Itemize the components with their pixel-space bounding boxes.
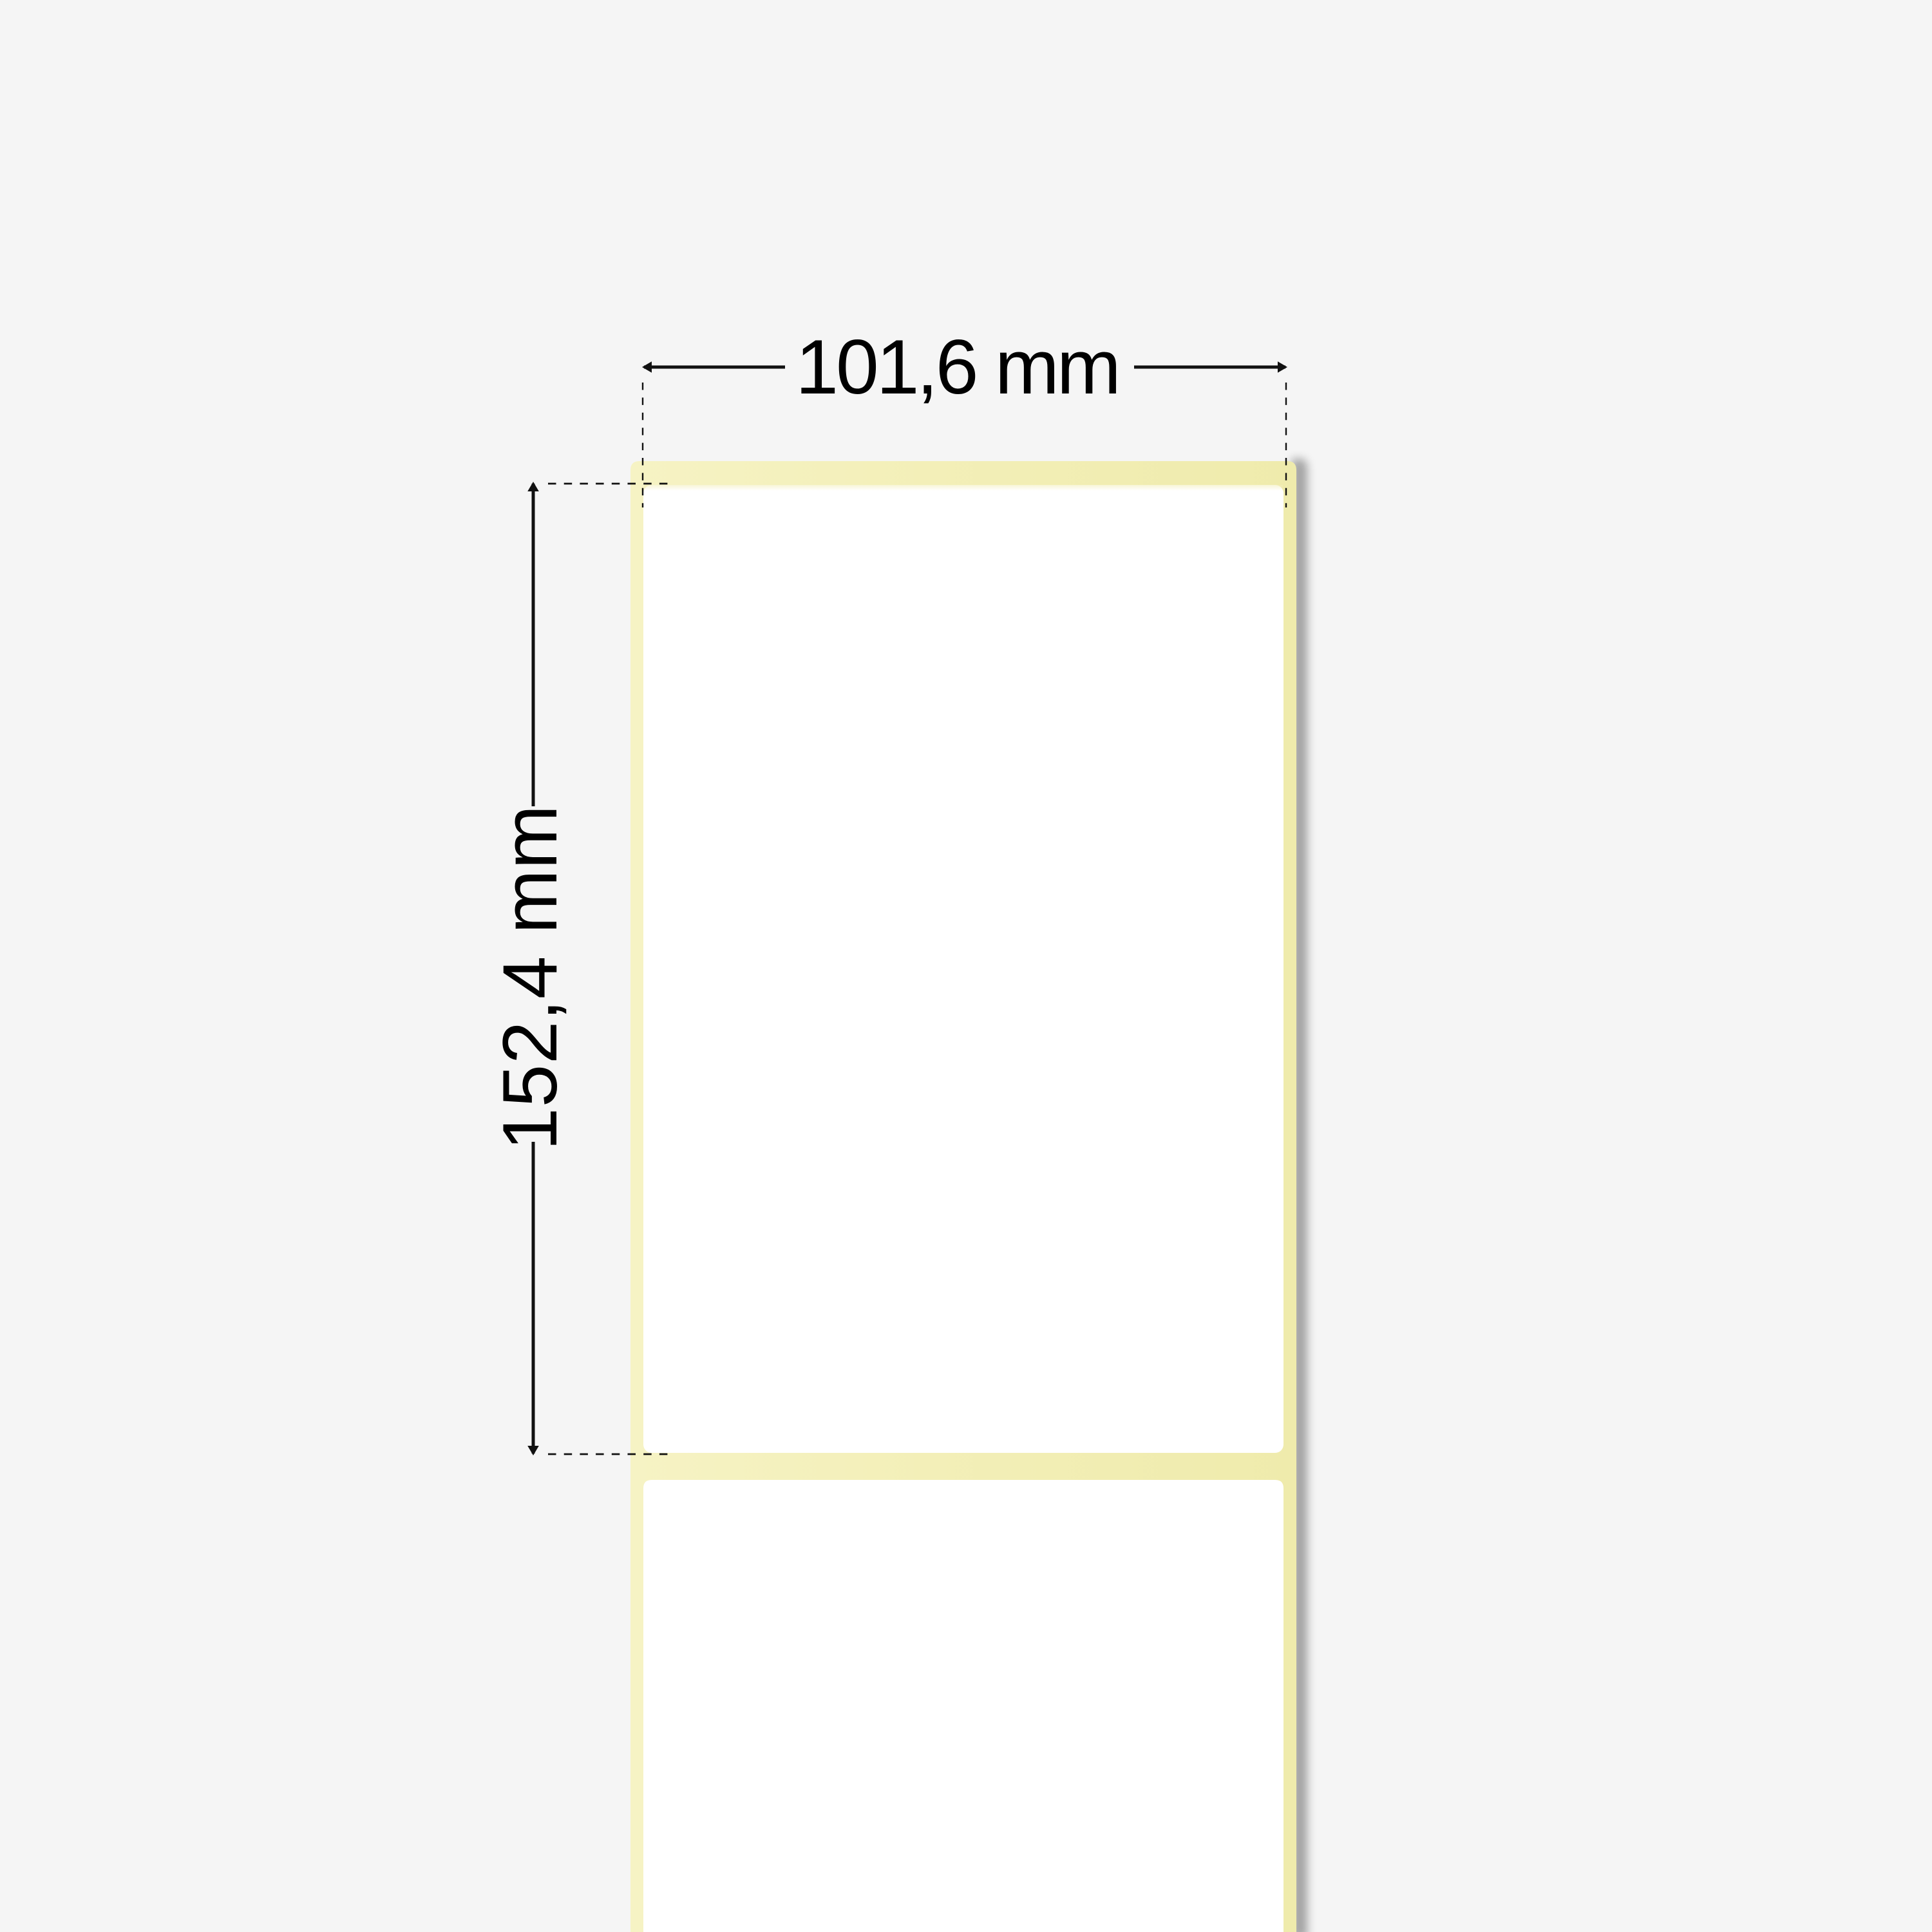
svg-text:101,6 mm: 101,6 mm <box>795 324 1119 410</box>
svg-text:152,4 mm: 152,4 mm <box>487 804 573 1151</box>
